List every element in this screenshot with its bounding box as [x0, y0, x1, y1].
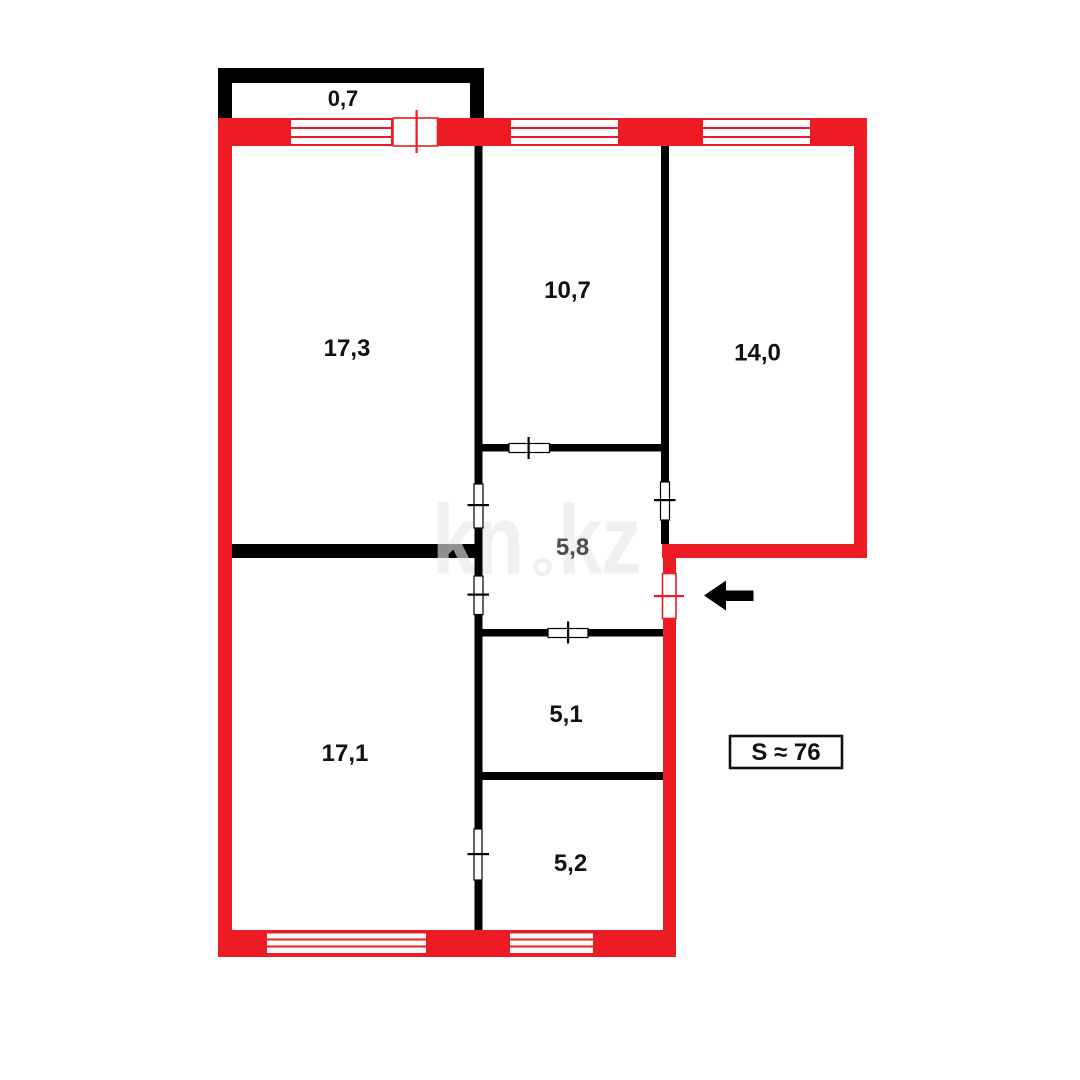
svg-text:10,7: 10,7 [544, 277, 591, 304]
svg-text:5,1: 5,1 [549, 701, 582, 728]
svg-text:17,1: 17,1 [322, 740, 369, 767]
svg-text:14,0: 14,0 [734, 340, 781, 367]
svg-text:17,3: 17,3 [324, 335, 371, 362]
svg-text:5,2: 5,2 [554, 850, 587, 877]
svg-text:0,7: 0,7 [328, 86, 359, 111]
svg-text:5,8: 5,8 [556, 534, 589, 561]
svg-text:S ≈ 76: S ≈ 76 [751, 739, 820, 766]
